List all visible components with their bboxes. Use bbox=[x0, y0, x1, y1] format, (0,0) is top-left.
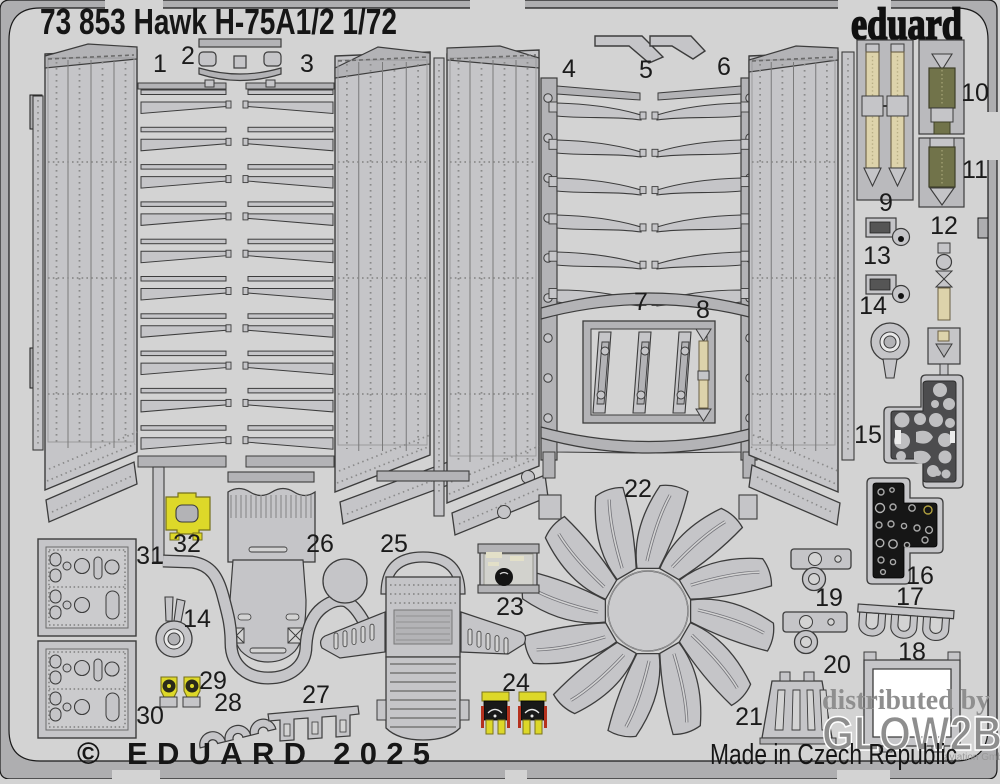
svg-text:30: 30 bbox=[136, 702, 164, 730]
svg-text:5: 5 bbox=[639, 56, 653, 84]
svg-text:8: 8 bbox=[696, 296, 710, 324]
svg-text:22: 22 bbox=[624, 475, 652, 503]
svg-text:3: 3 bbox=[300, 50, 314, 78]
svg-text:15: 15 bbox=[854, 421, 882, 449]
svg-text:12: 12 bbox=[930, 212, 958, 240]
svg-text:13: 13 bbox=[863, 242, 891, 270]
svg-text:19: 19 bbox=[815, 584, 843, 612]
svg-text:25: 25 bbox=[380, 530, 408, 558]
svg-text:4: 4 bbox=[562, 55, 576, 83]
svg-text:24: 24 bbox=[502, 669, 530, 697]
svg-text:17: 17 bbox=[896, 583, 924, 611]
svg-text:2: 2 bbox=[181, 42, 195, 70]
svg-text:26: 26 bbox=[306, 530, 334, 558]
svg-text:20: 20 bbox=[823, 651, 851, 679]
svg-text:10: 10 bbox=[961, 79, 989, 107]
svg-text:31: 31 bbox=[136, 542, 164, 570]
svg-text:1: 1 bbox=[153, 50, 167, 78]
svg-text:18: 18 bbox=[898, 638, 926, 666]
svg-text:9: 9 bbox=[879, 189, 893, 217]
svg-text:32: 32 bbox=[173, 530, 201, 558]
svg-text:73 853 Hawk H-75A1/2 1/72: 73 853 Hawk H-75A1/2 1/72 bbox=[40, 1, 397, 42]
svg-text:23: 23 bbox=[496, 593, 524, 621]
svg-text:11: 11 bbox=[962, 156, 988, 184]
svg-text:6: 6 bbox=[717, 53, 731, 81]
svg-text:14: 14 bbox=[183, 605, 211, 633]
svg-text:21: 21 bbox=[735, 703, 763, 731]
svg-text:27: 27 bbox=[302, 681, 330, 709]
svg-text:7: 7 bbox=[634, 288, 648, 316]
svg-text:Made in Czech Republic: Made in Czech Republic bbox=[710, 739, 957, 771]
svg-text:29: 29 bbox=[199, 667, 227, 695]
svg-text:14: 14 bbox=[859, 292, 887, 320]
